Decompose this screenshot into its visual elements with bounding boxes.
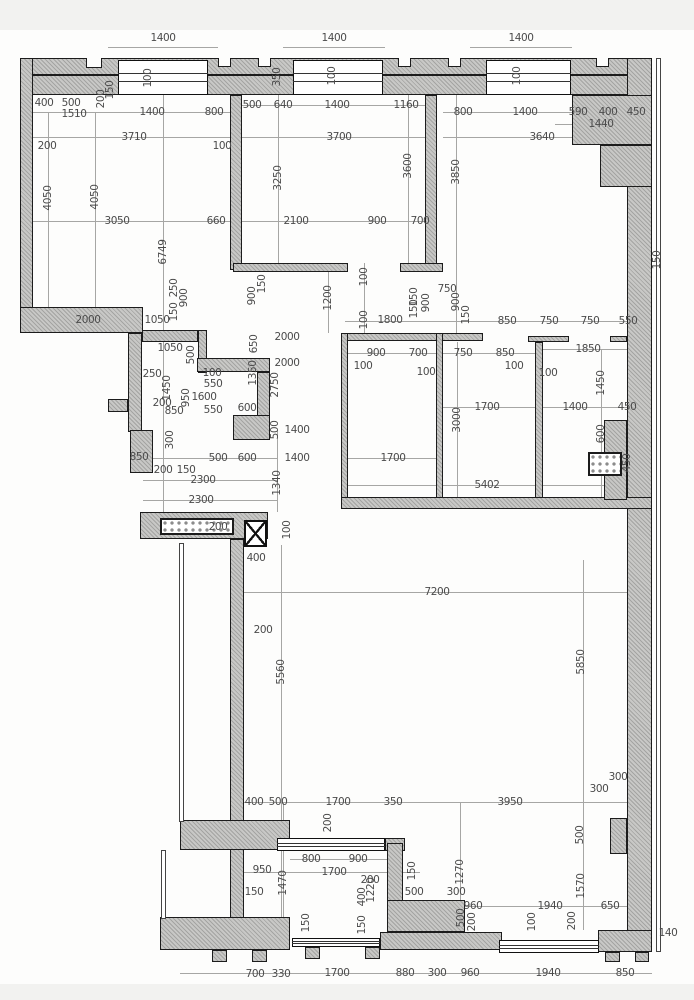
wall-notch <box>398 58 411 67</box>
dimension-label: 2000 <box>75 315 100 326</box>
dimension-label: 900 <box>421 294 432 313</box>
dimension-label: 100 <box>203 368 222 379</box>
dimension-label: 500 <box>269 797 288 808</box>
dimension-label: 200 <box>209 522 228 533</box>
dimension-label: 3950 <box>497 797 522 808</box>
window-symbol <box>499 940 599 953</box>
dimension-line <box>408 95 409 263</box>
dimension-label: 200 <box>467 913 478 932</box>
dimension-label: 400 <box>599 107 618 118</box>
dimension-label: 1400 <box>324 100 349 111</box>
dimension-label: 150 <box>301 914 312 933</box>
wall-segment <box>436 333 443 503</box>
dimension-label: 450 <box>618 402 637 413</box>
dimension-label: 650 <box>249 335 260 354</box>
dimension-label: 500 <box>62 98 81 109</box>
outer-wall-line <box>161 850 166 919</box>
dimension-label: 100 <box>505 361 524 372</box>
dimension-line <box>108 47 218 48</box>
dimension-label: 3850 <box>451 159 462 184</box>
wall-segment <box>425 95 437 270</box>
dimension-label: 150 <box>105 81 116 100</box>
dimension-label: 600 <box>238 453 257 464</box>
wall-notch <box>86 58 102 68</box>
dimension-label: 600 <box>596 425 607 444</box>
wall-segment <box>635 952 649 962</box>
dimension-label: 1700 <box>321 867 346 878</box>
window-symbol <box>118 60 208 95</box>
dimension-line <box>163 95 164 512</box>
dimension-label: 100 <box>359 311 370 330</box>
dimension-line <box>470 47 572 48</box>
dimension-label: 200 <box>567 912 578 931</box>
dimension-label: 100 <box>527 913 538 932</box>
dimension-label: 800 <box>302 854 321 865</box>
dimension-label: 150 <box>652 251 663 270</box>
dimension-label: 2300 <box>188 495 213 506</box>
dimension-line <box>243 802 627 803</box>
dimension-label: 700 <box>409 348 428 359</box>
dimension-label: 200 <box>323 814 334 833</box>
wall-segment <box>610 336 627 342</box>
dimension-label: 1940 <box>537 901 562 912</box>
dimension-label: 900 <box>349 854 368 865</box>
dimension-label: 900 <box>367 348 386 359</box>
dimension-label: 150 <box>461 306 472 325</box>
dimension-label: 1700 <box>474 402 499 413</box>
dimension-label: 800 <box>454 107 473 118</box>
wall-notch <box>258 58 271 67</box>
dimension-label: 1400 <box>562 402 587 413</box>
dimension-label: 100 <box>282 521 293 540</box>
dimension-label: 3250 <box>273 165 284 190</box>
column-symbol <box>244 520 267 547</box>
dimension-label: 300 <box>590 784 609 795</box>
outer-wall-line <box>179 543 184 822</box>
dimension-label: 1400 <box>139 107 164 118</box>
dimension-label: 1450 <box>596 370 607 395</box>
wall-segment <box>605 952 620 962</box>
dimension-label: 150 <box>357 916 368 935</box>
dimension-label: 2000 <box>274 332 299 343</box>
dimension-label: 660 <box>207 216 226 227</box>
dimension-label: 3600 <box>403 153 414 178</box>
dimension-label: 300 <box>428 968 447 979</box>
dimension-label: 500 <box>186 346 197 365</box>
dimension-label: 2100 <box>283 216 308 227</box>
dimension-label: 150 <box>245 887 264 898</box>
wall-segment <box>128 333 142 432</box>
dimension-label: 450 <box>627 107 646 118</box>
dimension-label: 1160 <box>393 100 418 111</box>
wall-segment <box>341 333 483 341</box>
dimension-label: 330 <box>272 969 291 980</box>
dimension-label: 1200 <box>323 285 334 310</box>
dimension-label: 900 <box>179 289 190 308</box>
wall-segment <box>233 415 270 440</box>
dimension-label: 1400 <box>321 33 346 44</box>
dimension-label: 100 <box>512 67 523 86</box>
wall-notch <box>448 58 461 67</box>
dimension-label: 850 <box>130 452 149 463</box>
dimension-label: 1400 <box>150 33 175 44</box>
dimension-label: 4050 <box>43 185 54 210</box>
dimension-label: 1400 <box>508 33 533 44</box>
dimension-label: 1340 <box>272 470 283 495</box>
dimension-label: 1800 <box>377 315 402 326</box>
dimension-label: 1350 <box>248 360 259 385</box>
dimension-label: 150 <box>407 862 418 881</box>
dimension-label: 500 <box>209 453 228 464</box>
dimension-label: 960 <box>461 968 480 979</box>
dimension-label: 880 <box>396 968 415 979</box>
dimension-label: 300 <box>447 887 466 898</box>
dimension-label: 1470 <box>278 870 289 895</box>
wall-segment <box>387 843 403 907</box>
dimension-label: 400 <box>245 797 264 808</box>
dimension-label: 5402 <box>474 480 499 491</box>
dimension-label: 1700 <box>325 797 350 808</box>
dimension-label: 1700 <box>324 968 349 979</box>
dimension-label: 500 <box>575 826 586 845</box>
dimension-label: 500 <box>405 887 424 898</box>
dimension-label: 150 <box>409 300 420 319</box>
dimension-label: 140 <box>659 928 678 939</box>
dimension-label: 1050 <box>144 315 169 326</box>
dimension-label: 2300 <box>190 475 215 486</box>
dimension-label: 1570 <box>576 873 587 898</box>
dimension-label: 3050 <box>104 216 129 227</box>
dimension-label: 1850 <box>575 344 600 355</box>
dimension-label: 400 <box>35 98 54 109</box>
dimension-label: 500 <box>270 421 281 440</box>
window-symbol <box>292 938 380 947</box>
dimension-label: 1700 <box>380 453 405 464</box>
dimension-label: 1400 <box>284 453 309 464</box>
dimension-label: 900 <box>368 216 387 227</box>
wall-segment <box>380 932 502 950</box>
dimension-label: 450 <box>622 454 633 473</box>
dimension-label: 1440 <box>588 119 613 130</box>
wall-segment <box>600 145 652 187</box>
dimension-label: 700 <box>246 969 265 980</box>
wall-segment <box>142 330 198 342</box>
dimension-label: 100 <box>417 367 436 378</box>
dimension-label: 850 <box>496 348 515 359</box>
dimension-label: 350 <box>384 797 403 808</box>
dimension-line <box>283 47 385 48</box>
page-margin <box>0 984 694 1000</box>
dimension-label: 7200 <box>424 587 449 598</box>
dimension-label: 300 <box>165 431 176 450</box>
wall-segment <box>233 263 348 272</box>
dimension-label: 100 <box>354 361 373 372</box>
wall-segment <box>230 95 242 270</box>
window-symbol <box>293 60 383 95</box>
dimension-label: 6749 <box>158 239 169 264</box>
wall-segment <box>180 820 290 850</box>
dimension-label: 1270 <box>455 859 466 884</box>
wall-segment <box>387 900 465 932</box>
dimension-label: 2000 <box>274 358 299 369</box>
dimension-label: 5560 <box>276 659 287 684</box>
vent-shaft-icon <box>588 452 622 476</box>
dimension-label: 150 <box>169 303 180 322</box>
dimension-label: 5850 <box>576 649 587 674</box>
dimension-label: 3700 <box>326 132 351 143</box>
dimension-label: 550 <box>204 379 223 390</box>
dimension-label: 550 <box>204 405 223 416</box>
dimension-label: 3640 <box>529 132 554 143</box>
dimension-label: 600 <box>238 403 257 414</box>
floor-plan: 1400140014002001501003501001004005001510… <box>0 0 694 1000</box>
wall-segment <box>305 947 320 959</box>
wall-segment <box>610 818 627 854</box>
wall-notch <box>218 58 231 67</box>
wall-segment <box>212 950 227 962</box>
wall-segment <box>20 58 33 333</box>
dimension-label: 400 <box>247 553 266 564</box>
dimension-label: 850 <box>616 968 635 979</box>
dimension-label: 100 <box>359 268 370 287</box>
dimension-label: 150 <box>257 275 268 294</box>
dimension-label: 590 <box>569 107 588 118</box>
dimension-label: 200 <box>154 465 173 476</box>
dimension-label: 100 <box>213 141 232 152</box>
dimension-label: 1600 <box>191 392 216 403</box>
dimension-label: 750 <box>540 316 559 327</box>
dimension-label: 900 <box>247 287 258 306</box>
dimension-label: 850 <box>498 316 517 327</box>
dimension-label: 700 <box>411 216 430 227</box>
dimension-label: 4050 <box>90 184 101 209</box>
dimension-label: 200 <box>254 625 273 636</box>
dimension-label: 3000 <box>452 407 463 432</box>
dimension-label: 950 <box>253 865 272 876</box>
wall-segment <box>598 930 652 952</box>
dimension-label: 750 <box>454 348 473 359</box>
wall-segment <box>160 917 290 950</box>
dimension-label: 750 <box>581 316 600 327</box>
dimension-label: 650 <box>601 901 620 912</box>
dimension-label: 800 <box>205 107 224 118</box>
dimension-label: 100 <box>539 368 558 379</box>
dimension-label: 2750 <box>270 372 281 397</box>
wall-segment <box>108 399 128 412</box>
dimension-label: 640 <box>274 100 293 111</box>
wall-notch <box>596 58 609 67</box>
wall-segment <box>400 263 443 272</box>
dimension-label: 3710 <box>121 132 146 143</box>
wall-segment <box>252 950 267 962</box>
dimension-label: 1510 <box>61 109 86 120</box>
dimension-label: 300 <box>609 772 628 783</box>
wall-segment <box>365 947 380 959</box>
dimension-label: 100 <box>327 67 338 86</box>
dimension-label: 500 <box>243 100 262 111</box>
dimension-label: 1400 <box>512 107 537 118</box>
dimension-label: 200 <box>38 141 57 152</box>
window-symbol <box>277 838 385 851</box>
dimension-label: 1220 <box>366 877 377 902</box>
dimension-label: 250 <box>143 369 162 380</box>
window-symbol <box>486 60 571 95</box>
dimension-label: 550 <box>619 316 638 327</box>
dimension-label: 500 <box>456 909 467 928</box>
wall-segment <box>230 539 244 934</box>
dimension-label: 100 <box>143 69 154 88</box>
dimension-label: 1050 <box>157 343 182 354</box>
outer-wall-line <box>656 58 661 952</box>
page-margin <box>0 0 694 30</box>
dimension-label: 350 <box>272 68 283 87</box>
dimension-label: 850 <box>165 406 184 417</box>
wall-segment <box>341 333 348 503</box>
dimension-label: 1940 <box>535 968 560 979</box>
dimension-label: 1400 <box>284 425 309 436</box>
